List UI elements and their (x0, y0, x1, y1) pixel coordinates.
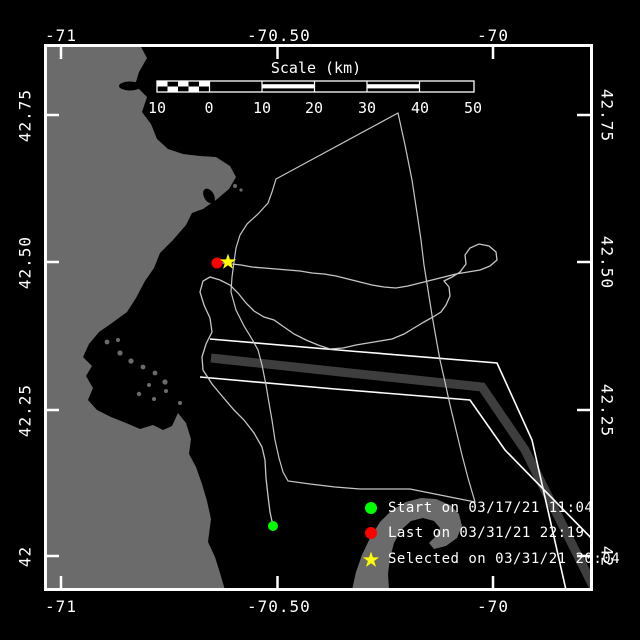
lat-label-left-3: 42 (16, 522, 35, 592)
start-legend-icon (360, 499, 384, 517)
lon-label-top-1: -70.50 (247, 26, 307, 45)
sanctuary-boundary (231, 113, 475, 502)
scalebar-tick-6: 50 (458, 99, 488, 117)
lon-label-bottom-1: -70.50 (247, 597, 307, 616)
last-legend-icon (360, 524, 384, 542)
lat-label-right-0: 42.75 (598, 81, 617, 151)
scalebar-tick-0: 10 (142, 99, 172, 117)
scalebar-tick-4: 30 (352, 99, 382, 117)
lat-label-left-1: 42.50 (16, 228, 35, 298)
lon-label-top-2: -70 (463, 26, 523, 45)
lat-label-right-1: 42.50 (598, 228, 617, 298)
lat-label-left-2: 42.25 (16, 376, 35, 446)
map-canvas[interactable] (0, 0, 640, 640)
lon-label-bottom-0: -71 (31, 597, 91, 616)
scalebar-tick-1: 0 (194, 99, 224, 117)
legend-start-label: Start on 03/17/21 11:04 (388, 500, 593, 516)
lat-label-right-2: 42.25 (598, 376, 617, 446)
selected-star-legend-icon (360, 550, 384, 568)
lat-label-left-0: 42.75 (16, 81, 35, 151)
legend-entry-start: Start on 03/17/21 11:04 (360, 499, 593, 517)
scalebar-title: Scale (km) (256, 59, 376, 77)
legend-last-label: Last on 03/31/21 22:19 (388, 525, 584, 541)
scalebar-tick-5: 40 (405, 99, 435, 117)
legend-entry-selected: Selected on 03/31/21 20:04 (360, 550, 620, 568)
map-figure: -71 -70.50 -70 -71 -70.50 -70 42.75 42.5… (0, 0, 640, 640)
legend-selected-label: Selected on 03/31/21 20:04 (388, 551, 620, 567)
mainland-landmass (45, 45, 236, 590)
coastal-bay-notch (119, 82, 141, 91)
start-marker[interactable] (268, 521, 278, 531)
legend-entry-last: Last on 03/31/21 22:19 (360, 524, 584, 542)
lon-label-top-0: -71 (31, 26, 91, 45)
scalebar (155, 79, 479, 95)
scalebar-tick-2: 10 (247, 99, 277, 117)
scalebar-tick-3: 20 (299, 99, 329, 117)
lon-label-bottom-2: -70 (463, 597, 523, 616)
last-marker[interactable] (212, 258, 223, 269)
